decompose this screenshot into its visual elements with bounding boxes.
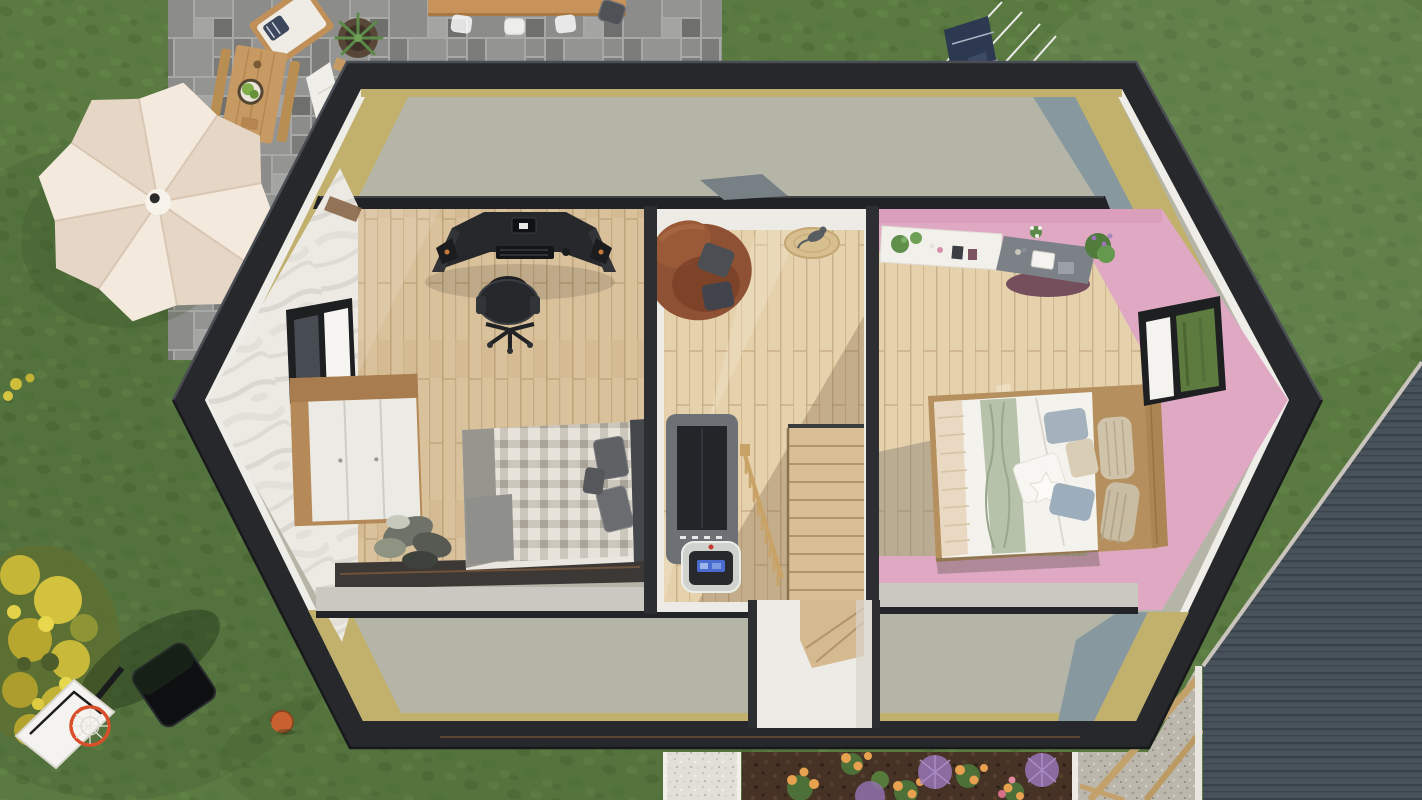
partition-right <box>866 206 879 612</box>
plant-1 <box>891 235 909 253</box>
keyboard <box>496 246 554 259</box>
dark-cushion-2 <box>701 281 735 312</box>
wardrobe <box>289 374 422 526</box>
floorplan-render <box>0 0 1422 800</box>
winder-steps <box>800 600 864 668</box>
staircase <box>788 424 864 602</box>
stairwell-wall-right <box>872 600 880 728</box>
mouse <box>562 248 570 256</box>
white-gravel-path <box>666 752 740 800</box>
landing <box>637 209 878 612</box>
flower-bed <box>742 752 1078 800</box>
side-window-right <box>1138 296 1226 406</box>
blue-pillow-1 <box>1043 407 1089 445</box>
round-rug <box>785 228 839 258</box>
double-bed-plaid <box>462 419 650 570</box>
double-bed-white <box>928 382 1168 574</box>
picture-frame-1 <box>951 246 963 260</box>
stairwell <box>748 600 880 728</box>
roof-side-curb <box>1195 666 1202 800</box>
dining-table <box>428 0 626 16</box>
scene-canvas <box>0 0 1422 800</box>
white-shelf-desk <box>880 226 1002 270</box>
house <box>173 62 1322 748</box>
wardrobe-doors <box>308 398 420 522</box>
partition-left <box>644 206 657 614</box>
stairwell-wall-left <box>748 600 757 728</box>
interior-top-wall <box>313 196 1110 209</box>
knee-wall-strip-right <box>878 583 1138 609</box>
picture-frame-2 <box>968 249 977 260</box>
